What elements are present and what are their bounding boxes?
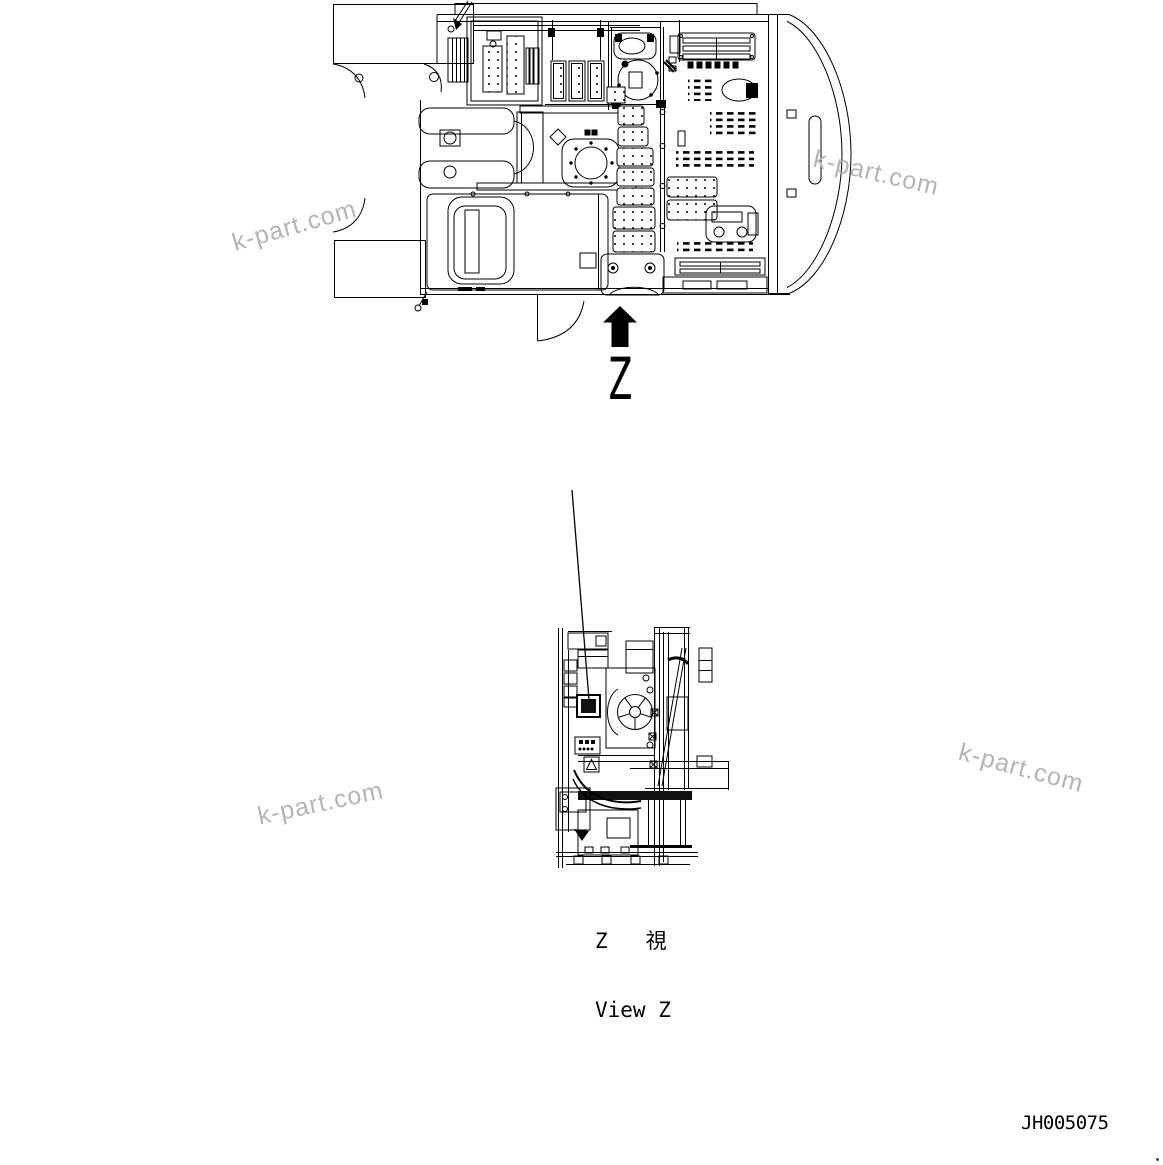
operator-cab [415, 192, 608, 341]
view-caption-ja: Z 視 [595, 930, 671, 953]
pump-bay [607, 20, 680, 110]
lower-structure [556, 756, 729, 865]
view-z-detail [556, 627, 729, 868]
drawing-number: JH005075 [1021, 1112, 1109, 1134]
parts-diagram-page: Z Z 視 View Z JH005075 k-part.com k-part.… [0, 0, 1163, 1165]
warning-plate [575, 737, 600, 772]
control-valve-boxes [545, 61, 660, 105]
side-brackets [647, 648, 712, 768]
cooling-fan [606, 641, 655, 748]
machine-plan-view [333, 1, 851, 341]
view-caption: Z 視 View Z [595, 884, 671, 1045]
diagram-line-art [0, 0, 1163, 1165]
swing-motor [477, 106, 636, 190]
leader-line [572, 490, 590, 712]
z-view-arrow-icon [603, 306, 637, 347]
upper-components [564, 633, 608, 717]
view-caption-en: View Z [595, 999, 671, 1022]
view-arrow-label: Z [607, 346, 632, 413]
stray-dot [1156, 1158, 1159, 1161]
